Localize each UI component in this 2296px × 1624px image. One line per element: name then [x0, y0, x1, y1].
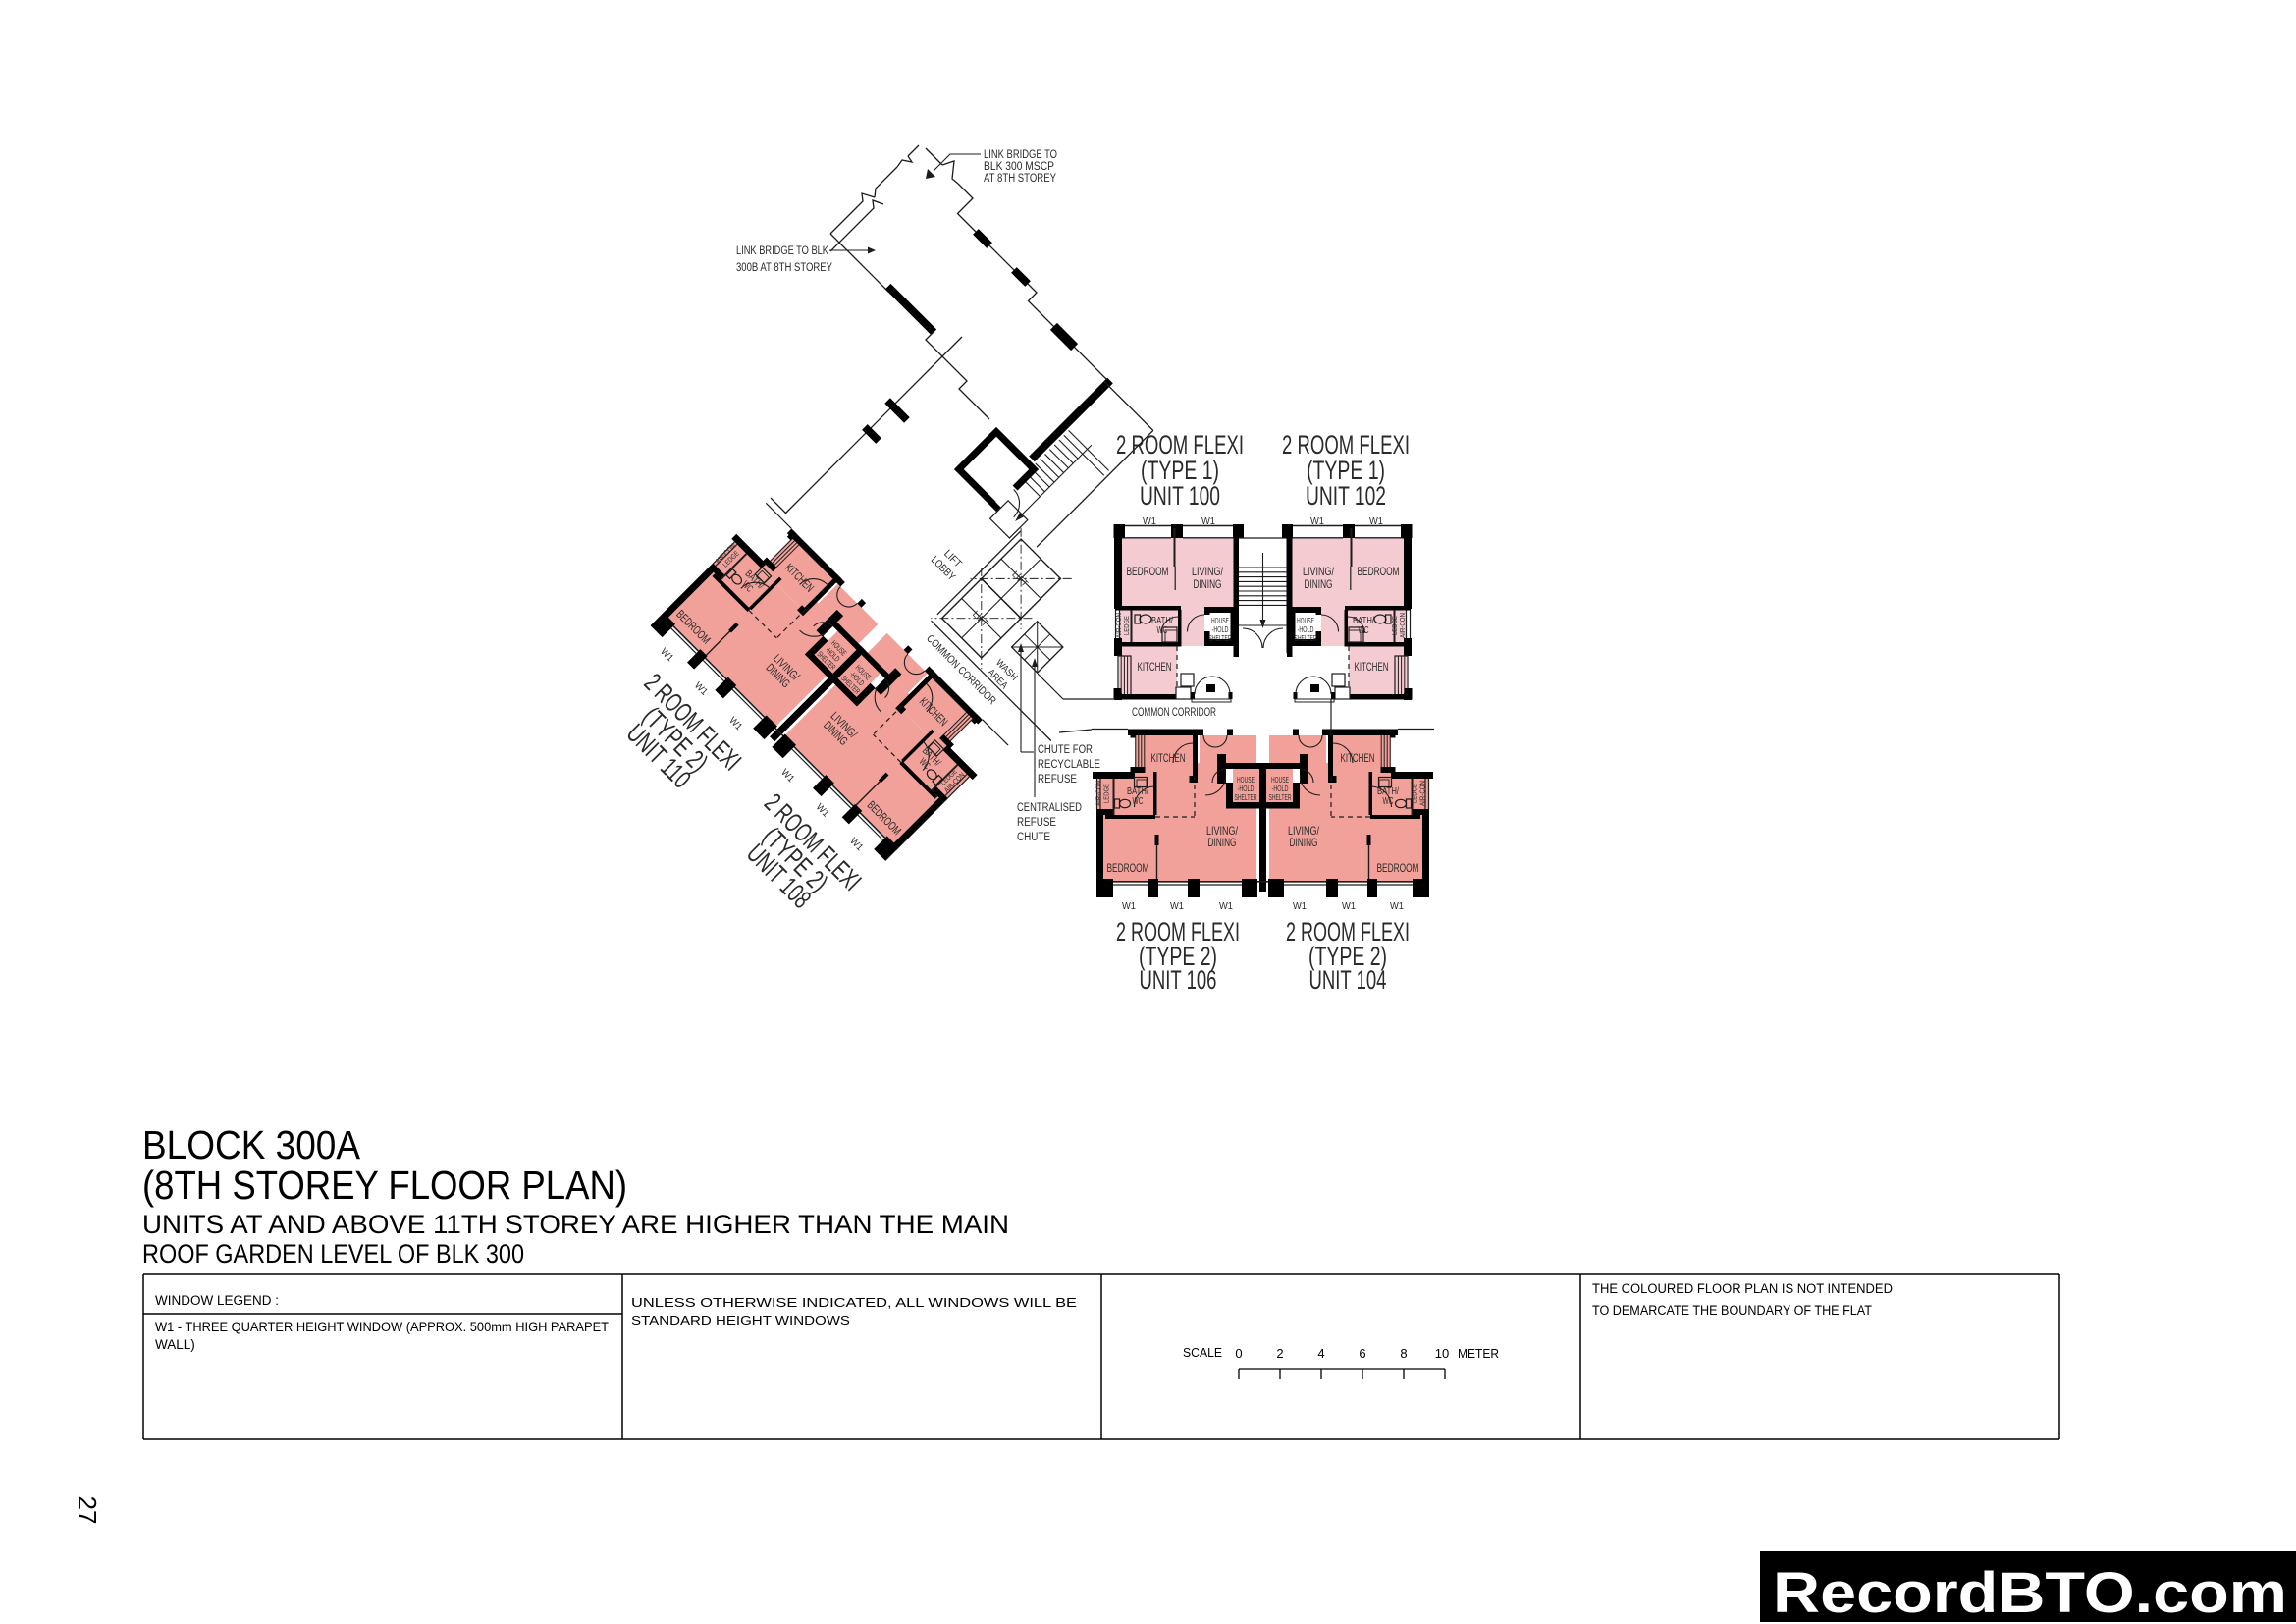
svg-text:UNIT 102: UNIT 102	[1306, 481, 1386, 511]
svg-text:6: 6	[1359, 1346, 1365, 1361]
svg-text:UNIT 104: UNIT 104	[1309, 965, 1387, 995]
svg-text:DINING: DINING	[1194, 577, 1222, 591]
svg-text:UNIT 100: UNIT 100	[1140, 481, 1220, 511]
svg-text:W1: W1	[1293, 901, 1307, 912]
svg-text:UNLESS OTHERWISE INDICATED, AL: UNLESS OTHERWISE INDICATED, ALL WINDOWS …	[631, 1296, 1077, 1310]
svg-text:W1: W1	[1369, 516, 1383, 527]
svg-text:THE COLOURED FLOOR PLAN IS NOT: THE COLOURED FLOOR PLAN IS NOT INTENDED	[1592, 1281, 1893, 1296]
svg-text:WC: WC	[1133, 796, 1144, 807]
svg-text:WALL): WALL)	[155, 1337, 195, 1352]
svg-text:KITCHEN: KITCHEN	[1341, 751, 1375, 765]
svg-text:W1: W1	[1342, 901, 1356, 912]
svg-text:4: 4	[1317, 1346, 1324, 1361]
svg-text:-HOLD: -HOLD	[1212, 625, 1229, 634]
svg-text:METER: METER	[1458, 1346, 1499, 1361]
svg-text:KITCHEN: KITCHEN	[1151, 751, 1186, 765]
svg-text:8: 8	[1400, 1346, 1407, 1361]
svg-text:CHUTE: CHUTE	[1017, 832, 1050, 843]
svg-text:REFUSE: REFUSE	[1017, 817, 1056, 829]
svg-text:AIR-CON: AIR-CON	[1418, 781, 1427, 806]
svg-text:LIVING/: LIVING/	[1192, 565, 1223, 578]
svg-text:WC: WC	[1383, 796, 1394, 807]
svg-text:DINING: DINING	[1208, 836, 1237, 849]
svg-text:2: 2	[1276, 1346, 1283, 1361]
svg-text:W1: W1	[1390, 901, 1404, 912]
svg-text:SCALE: SCALE	[1183, 1345, 1222, 1360]
svg-text:W1: W1	[1201, 516, 1215, 527]
svg-text:AT 8TH STOREY: AT 8TH STOREY	[984, 173, 1056, 185]
svg-text:HOUSE: HOUSE	[1271, 776, 1289, 785]
svg-text:DINING: DINING	[1290, 836, 1318, 849]
svg-text:REFUSE: REFUSE	[1038, 774, 1077, 785]
svg-text:-HOLD: -HOLD	[1272, 785, 1289, 793]
svg-text:HOUSE: HOUSE	[1297, 617, 1314, 625]
svg-text:WINDOW LEGEND :: WINDOW LEGEND :	[155, 1293, 279, 1308]
svg-text:WC: WC	[1359, 625, 1369, 636]
svg-text:BEDROOM: BEDROOM	[1358, 565, 1400, 578]
svg-text:LEDGE: LEDGE	[1390, 616, 1399, 635]
svg-text:SHELTER: SHELTER	[1269, 793, 1292, 802]
svg-text:W1: W1	[1170, 901, 1184, 912]
svg-text:HOUSE: HOUSE	[1211, 617, 1229, 625]
svg-text:W1: W1	[1122, 901, 1136, 912]
svg-text:-HOLD: -HOLD	[1298, 625, 1314, 634]
svg-text:LEDGE: LEDGE	[1411, 784, 1419, 803]
svg-text:W1 - THREE QUARTER HEIGHT WIND: W1 - THREE QUARTER HEIGHT WINDOW (APPROX…	[155, 1320, 609, 1334]
svg-text:SHELTER: SHELTER	[1209, 634, 1232, 643]
svg-text:TO DEMARCATE THE BOUNDARY OF T: TO DEMARCATE THE BOUNDARY OF THE FLAT	[1592, 1303, 1872, 1318]
svg-text:BEDROOM: BEDROOM	[1127, 565, 1169, 578]
svg-text:300B AT 8TH STOREY: 300B AT 8TH STOREY	[736, 262, 832, 274]
svg-text:0: 0	[1235, 1346, 1242, 1361]
svg-text:DINING: DINING	[1305, 577, 1333, 591]
svg-text:UNIT 106: UNIT 106	[1140, 965, 1217, 995]
svg-text:W1: W1	[1310, 516, 1324, 527]
svg-text:RECYCLABLE: RECYCLABLE	[1038, 759, 1100, 771]
svg-text:KITCHEN: KITCHEN	[1355, 660, 1389, 674]
svg-text:STANDARD HEIGHT WINDOWS: STANDARD HEIGHT WINDOWS	[631, 1314, 850, 1327]
svg-text:LEDGE: LEDGE	[1102, 784, 1111, 803]
svg-text:RecordBTO.com: RecordBTO.com	[1773, 1561, 2287, 1624]
svg-text:HOUSE: HOUSE	[1237, 776, 1255, 785]
svg-text:BLOCK 300A: BLOCK 300A	[142, 1122, 361, 1167]
svg-text:(8TH STOREY FLOOR PLAN): (8TH STOREY FLOOR PLAN)	[142, 1163, 627, 1208]
svg-text:LINK BRIDGE TO BLK: LINK BRIDGE TO BLK	[736, 245, 828, 257]
svg-text:CHUTE FOR: CHUTE FOR	[1038, 744, 1093, 756]
svg-text:CENTRALISED: CENTRALISED	[1017, 802, 1082, 814]
svg-text:LINK BRIDGE TO: LINK BRIDGE TO	[984, 149, 1057, 161]
svg-text:10: 10	[1435, 1346, 1449, 1361]
svg-text:W1: W1	[1219, 901, 1233, 912]
svg-text:SHELTER: SHELTER	[1235, 793, 1257, 802]
svg-text:ROOF GARDEN LEVEL OF BLK 300: ROOF GARDEN LEVEL OF BLK 300	[142, 1239, 524, 1269]
svg-text:KITCHEN: KITCHEN	[1138, 660, 1172, 674]
svg-text:-HOLD: -HOLD	[1238, 785, 1255, 793]
svg-text:BEDROOM: BEDROOM	[1377, 861, 1419, 875]
svg-text:COMMON CORRIDOR: COMMON CORRIDOR	[1132, 707, 1216, 719]
svg-text:WC: WC	[1157, 625, 1168, 636]
svg-text:LIVING/: LIVING/	[1303, 565, 1334, 578]
svg-text:UNITS AT AND ABOVE 11TH STOREY: UNITS AT AND ABOVE 11TH STOREY ARE HIGHE…	[142, 1210, 1009, 1239]
svg-text:BEDROOM: BEDROOM	[1107, 861, 1149, 875]
svg-text:SHELTER: SHELTER	[1295, 634, 1317, 643]
svg-text:AIR-CON: AIR-CON	[1398, 613, 1407, 638]
svg-text:LEDGE: LEDGE	[1122, 616, 1131, 635]
svg-text:27: 27	[73, 1496, 102, 1525]
svg-text:BLK 300 MSCP: BLK 300 MSCP	[984, 161, 1054, 173]
svg-text:W1: W1	[1143, 516, 1156, 527]
